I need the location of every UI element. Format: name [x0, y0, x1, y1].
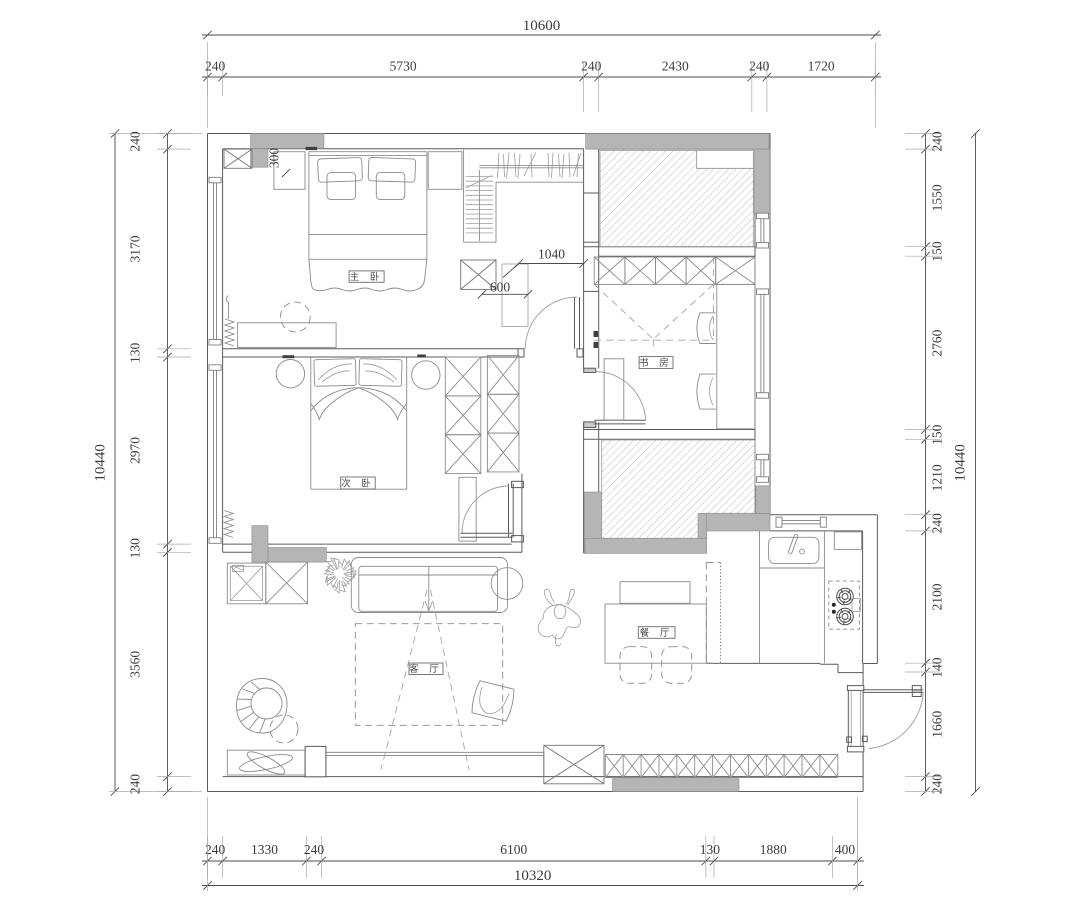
svg-text:3560: 3560 — [128, 651, 143, 678]
svg-text:400: 400 — [835, 842, 856, 857]
svg-text:10600: 10600 — [523, 18, 561, 34]
svg-text:600: 600 — [490, 280, 511, 295]
svg-text:5730: 5730 — [390, 59, 417, 74]
svg-text:6100: 6100 — [500, 842, 527, 857]
svg-text:1550: 1550 — [930, 184, 945, 211]
svg-text:1720: 1720 — [808, 59, 835, 74]
svg-text:1660: 1660 — [930, 711, 945, 738]
svg-text:150: 150 — [930, 424, 945, 445]
svg-text:3170: 3170 — [128, 235, 143, 262]
svg-text:餐 厅: 餐 厅 — [640, 627, 674, 639]
svg-text:240: 240 — [128, 774, 143, 795]
svg-text:1040: 1040 — [538, 247, 565, 262]
svg-text:140: 140 — [930, 657, 945, 678]
svg-text:书 房: 书 房 — [639, 357, 673, 369]
svg-text:240: 240 — [205, 842, 226, 857]
svg-text:主 卧: 主 卧 — [350, 271, 384, 283]
svg-text:300: 300 — [267, 148, 282, 169]
svg-text:130: 130 — [128, 343, 143, 364]
svg-text:240: 240 — [205, 59, 226, 74]
svg-text:次 卧: 次 卧 — [341, 478, 375, 490]
svg-text:240: 240 — [128, 131, 143, 152]
svg-text:240: 240 — [581, 59, 602, 74]
svg-text:240: 240 — [749, 59, 770, 74]
svg-text:2760: 2760 — [930, 329, 945, 356]
svg-text:2970: 2970 — [128, 437, 143, 464]
svg-text:150: 150 — [930, 241, 945, 262]
svg-text:1330: 1330 — [251, 842, 278, 857]
svg-text:10440: 10440 — [953, 444, 969, 482]
svg-text:10440: 10440 — [93, 444, 109, 482]
svg-text:客 厅: 客 厅 — [409, 663, 443, 675]
svg-text:130: 130 — [128, 538, 143, 559]
svg-text:10320: 10320 — [514, 868, 552, 884]
svg-text:240: 240 — [930, 774, 945, 795]
svg-text:130: 130 — [700, 842, 721, 857]
svg-text:2430: 2430 — [662, 59, 689, 74]
svg-text:240: 240 — [930, 513, 945, 534]
svg-text:240: 240 — [304, 842, 325, 857]
svg-text:240: 240 — [930, 131, 945, 152]
svg-text:1210: 1210 — [930, 464, 945, 491]
svg-text:1880: 1880 — [760, 842, 787, 857]
svg-text:2100: 2100 — [930, 583, 945, 610]
